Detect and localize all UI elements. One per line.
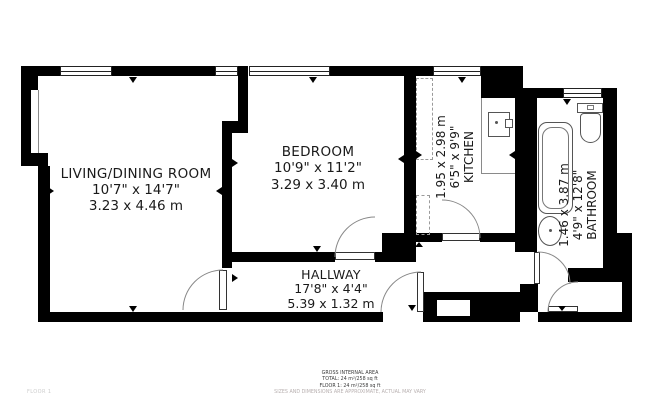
room-label-kitchen: 1.95 x 2.98 m 6'5" x 9'9" KITCHEN — [434, 115, 476, 199]
room-dim-imperial: 10'7" x 14'7" — [48, 182, 224, 198]
wall-face-line — [38, 90, 39, 153]
room-dim-metric: 3.23 x 4.46 m — [48, 198, 224, 214]
room-name: BATHROOM — [585, 163, 599, 247]
wall — [21, 90, 31, 153]
room-dim-imperial: 6'5" x 9'9" — [448, 115, 462, 199]
wall — [404, 66, 416, 242]
wall — [538, 312, 632, 322]
wall — [480, 233, 520, 242]
door-leaf — [417, 272, 424, 312]
wall — [603, 98, 617, 233]
room-dim-metric: 1.95 x 2.98 m — [434, 115, 448, 199]
door-leaf — [534, 252, 540, 284]
dimension-marker — [232, 159, 238, 167]
room-dim-metric: 5.39 x 1.32 m — [245, 297, 417, 311]
window — [433, 66, 481, 76]
wall — [222, 252, 335, 262]
window — [563, 88, 602, 98]
dimension-marker — [563, 99, 571, 105]
counter-edge-line — [481, 98, 482, 173]
wall — [520, 284, 538, 312]
room-label-living: LIVING/DINING ROOM 10'7" x 14'7" 3.23 x … — [48, 166, 224, 215]
window — [249, 66, 330, 76]
door-arc — [538, 252, 570, 284]
room-dim-imperial: 17'8" x 4'4" — [245, 282, 417, 296]
toilet-flush-icon — [587, 105, 594, 110]
wall — [222, 312, 383, 322]
door-leaf — [442, 233, 480, 241]
floor-label: FLOOR 1 — [27, 389, 51, 395]
room-name: KITCHEN — [462, 115, 476, 199]
wall — [602, 88, 617, 98]
wall — [112, 66, 215, 76]
window — [60, 66, 112, 76]
gross-internal-area-note: GROSS INTERNAL AREA TOTAL: 24 m²/258 sq … — [200, 371, 500, 396]
room-dim-imperial: 4'9" x 12'8" — [571, 163, 585, 247]
sink-drain-icon — [495, 121, 498, 124]
toilet-bowl-icon — [580, 113, 601, 143]
wall — [38, 312, 230, 322]
floor-plan: LIVING/DINING ROOM 10'7" x 14'7" 3.23 x … — [0, 0, 650, 406]
sink-tap-icon — [505, 119, 513, 128]
room-label-hallway: HALLWAY 17'8" x 4'4" 5.39 x 1.32 m — [245, 268, 417, 311]
wall — [382, 233, 416, 262]
door-arc — [335, 217, 375, 257]
room-name: LIVING/DINING ROOM — [48, 166, 224, 182]
wall-recess — [437, 300, 470, 316]
wall — [568, 268, 632, 282]
dimension-marker — [415, 242, 423, 247]
door-leaf — [335, 252, 375, 260]
wall — [603, 233, 632, 268]
counter-edge-line — [481, 173, 515, 174]
room-label-bathroom: 1.46 x 3.87 m 4'9" x 12'8" BATHROOM — [557, 163, 599, 247]
room-dim-imperial: 10'9" x 11'2" — [240, 160, 396, 176]
room-dim-metric: 3.29 x 3.40 m — [240, 177, 396, 193]
room-label-bedroom: BEDROOM 10'9" x 11'2" 3.29 x 3.40 m — [240, 144, 396, 193]
dimension-marker — [129, 77, 137, 83]
dimension-marker — [458, 77, 466, 83]
dimension-marker — [309, 77, 317, 83]
door-arc — [183, 270, 223, 310]
disclaimer-text: SIZES AND DIMENSIONS ARE APPROXIMATE, AC… — [200, 390, 500, 396]
overhead-unit-outline — [416, 78, 433, 160]
wall — [515, 88, 537, 252]
door-leaf — [219, 270, 227, 310]
room-name: HALLWAY — [245, 268, 417, 282]
wall — [416, 66, 433, 76]
wall — [21, 153, 48, 166]
basin-drain-icon — [549, 229, 552, 232]
room-name: BEDROOM — [240, 144, 396, 160]
door-leaf — [548, 306, 578, 312]
overhead-unit-outline — [416, 195, 430, 235]
window — [215, 66, 238, 76]
room-dim-metric: 1.46 x 3.87 m — [557, 163, 571, 247]
dimension-marker — [232, 274, 238, 282]
wall — [21, 66, 38, 90]
